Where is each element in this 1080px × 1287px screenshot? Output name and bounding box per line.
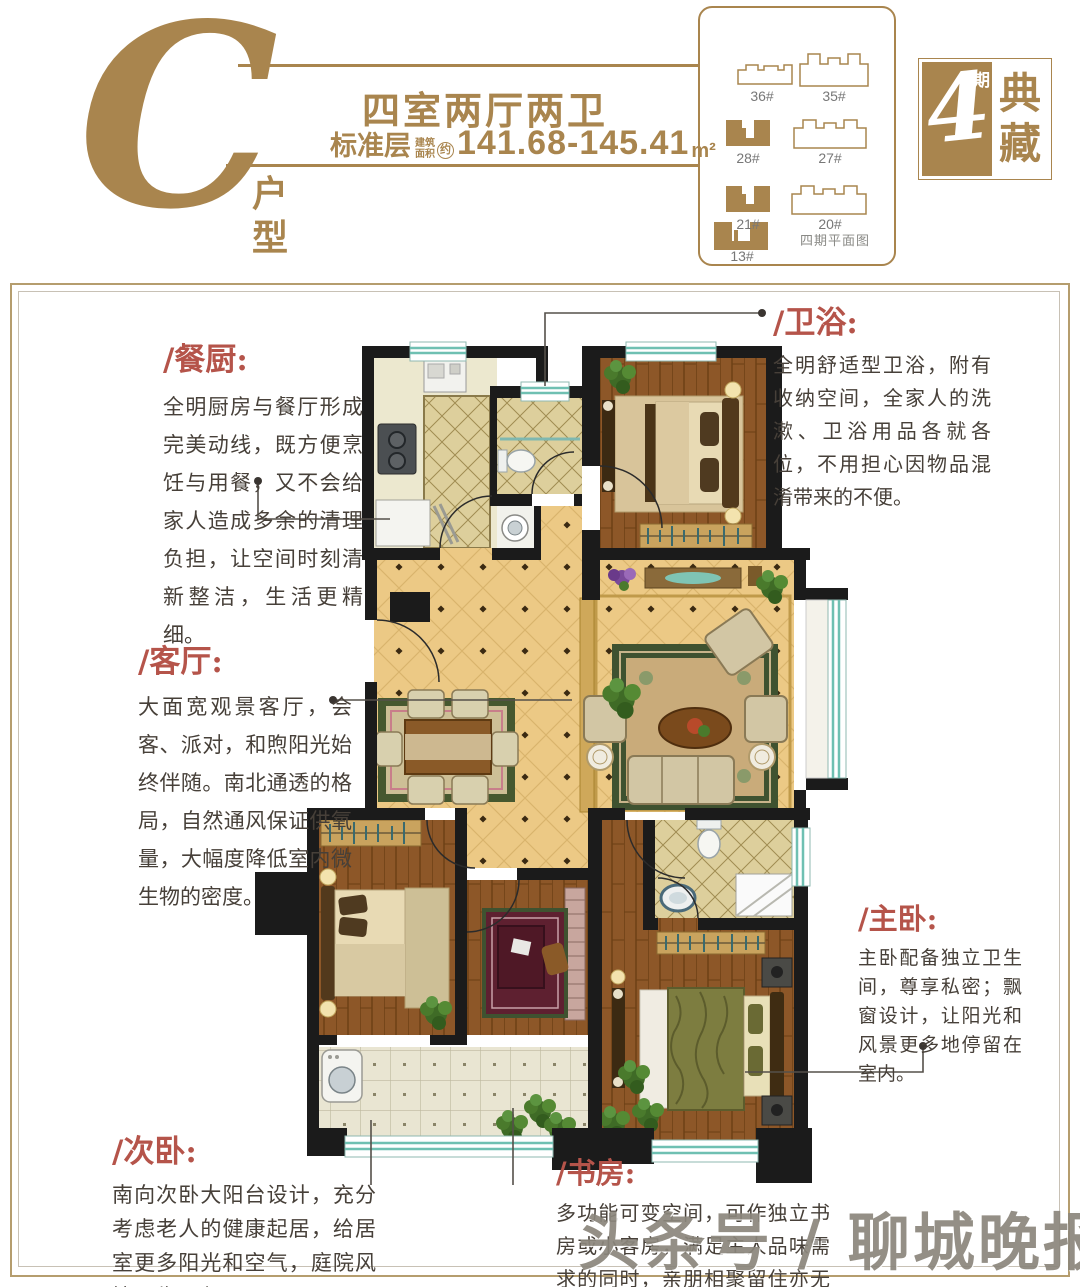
annotation-heading: /主卧:: [858, 896, 1022, 938]
window-master-bath: [792, 828, 810, 886]
annotation-master-bedroom: /主卧: 主卧配备独立卫生间，尊享私密；飘窗设计，让阳光和风景更多地停留在室内。: [858, 896, 1022, 1089]
building-outline-35: [800, 54, 868, 86]
annotation-body: 主卧配备独立卫生间，尊享私密；飘窗设计，让阳光和风景更多地停留在室内。: [858, 944, 1022, 1089]
phase-badge: 4 期 典藏: [918, 58, 1052, 180]
poster-page: C 户型 四室两厅两卫 标准层 建筑面积 约 141.68-145.41 m²: [0, 0, 1080, 1287]
dining-furniture: [376, 690, 518, 804]
annotation-heading: /卫浴:: [773, 297, 991, 342]
building-label: 35#: [822, 88, 845, 104]
site-buildings-graphic: [700, 8, 890, 260]
annotation-heading: /书房:: [556, 1150, 830, 1192]
building-outline-20: [792, 186, 866, 214]
annotation-heading: /客厅:: [138, 636, 352, 681]
window-north-bedroom: [626, 342, 716, 361]
area-subtitle: 标准层 建筑面积 约 141.68-145.41 m²: [330, 124, 716, 163]
annotation-heading: /餐厨:: [163, 334, 363, 379]
annotation-living-room: /客厅: 大面宽观景客厅，会客、派对，和煦阳光始终伴随。南北通透的格局，自然通风…: [138, 636, 352, 917]
header-rule-bottom: [226, 164, 698, 167]
annotation-body: 南向次卧大阳台设计，充分考虑老人的健康起居，给居室更多阳光和空气，庭院风情尽收眼…: [112, 1179, 376, 1287]
building-outline-36: [738, 65, 792, 84]
header-rule-top: [238, 64, 698, 67]
building-outline-27: [794, 120, 866, 148]
annotation-heading: /次卧:: [112, 1126, 376, 1171]
window-balcony: [345, 1136, 553, 1157]
phase-number-box: 4 期: [922, 62, 992, 176]
annotation-body: 全明舒适型卫浴，附有收纳空间，全家人的洗漱、卫浴用品各就各位，不用担心因物品混淆…: [773, 350, 991, 515]
unit-letter: C: [78, 0, 279, 252]
annotation-bathroom: /卫浴: 全明舒适型卫浴，附有收纳空间，全家人的洗漱、卫浴用品各就各位，不用担心…: [773, 297, 991, 515]
building-filled-28: [726, 120, 770, 146]
site-plan-panel: 36# 35# 28# 27# 21# 20# 13# 四期平面图: [698, 6, 896, 266]
floor-label: 标准层: [330, 124, 411, 163]
window-kitchen: [410, 342, 466, 361]
building-label: 28#: [736, 150, 759, 166]
annotation-kitchen-dining: /餐厨: 全明厨房与餐厅形成完美动线，既方便烹饪与用餐，又不会给家人造成多余的清…: [163, 334, 363, 655]
unit-type-label: 户型: [250, 172, 290, 260]
approx-label: 约: [437, 142, 454, 159]
annotation-second-bedroom: /次卧: 南向次卧大阳台设计，充分考虑老人的健康起居，给居室更多阳光和空气，庭院…: [112, 1126, 376, 1287]
annotation-body: 全明厨房与餐厅形成完美动线，既方便烹饪与用餐，又不会给家人造成多余的清理负担，让…: [163, 389, 363, 655]
phase-name: 典藏: [992, 62, 1048, 176]
area-value: 141.68-145.41: [457, 124, 689, 163]
watermark: 头条号 / 聊城晚报: [578, 1192, 1080, 1282]
bay-window-living: [806, 600, 846, 778]
building-label: 13#: [730, 248, 753, 264]
building-label: 27#: [818, 150, 841, 166]
building-label: 36#: [750, 88, 773, 104]
site-plan-caption: 四期平面图: [800, 230, 870, 249]
phase-suffix: 期: [973, 66, 990, 91]
area-small-label: 建筑面积: [415, 138, 435, 160]
building-label: 21#: [736, 216, 759, 232]
annotation-body: 大面宽观景客厅，会客、派对，和煦阳光始终伴随。南北通透的格局，自然通风保证供氧量…: [138, 689, 352, 917]
building-filled-21: [726, 186, 770, 212]
